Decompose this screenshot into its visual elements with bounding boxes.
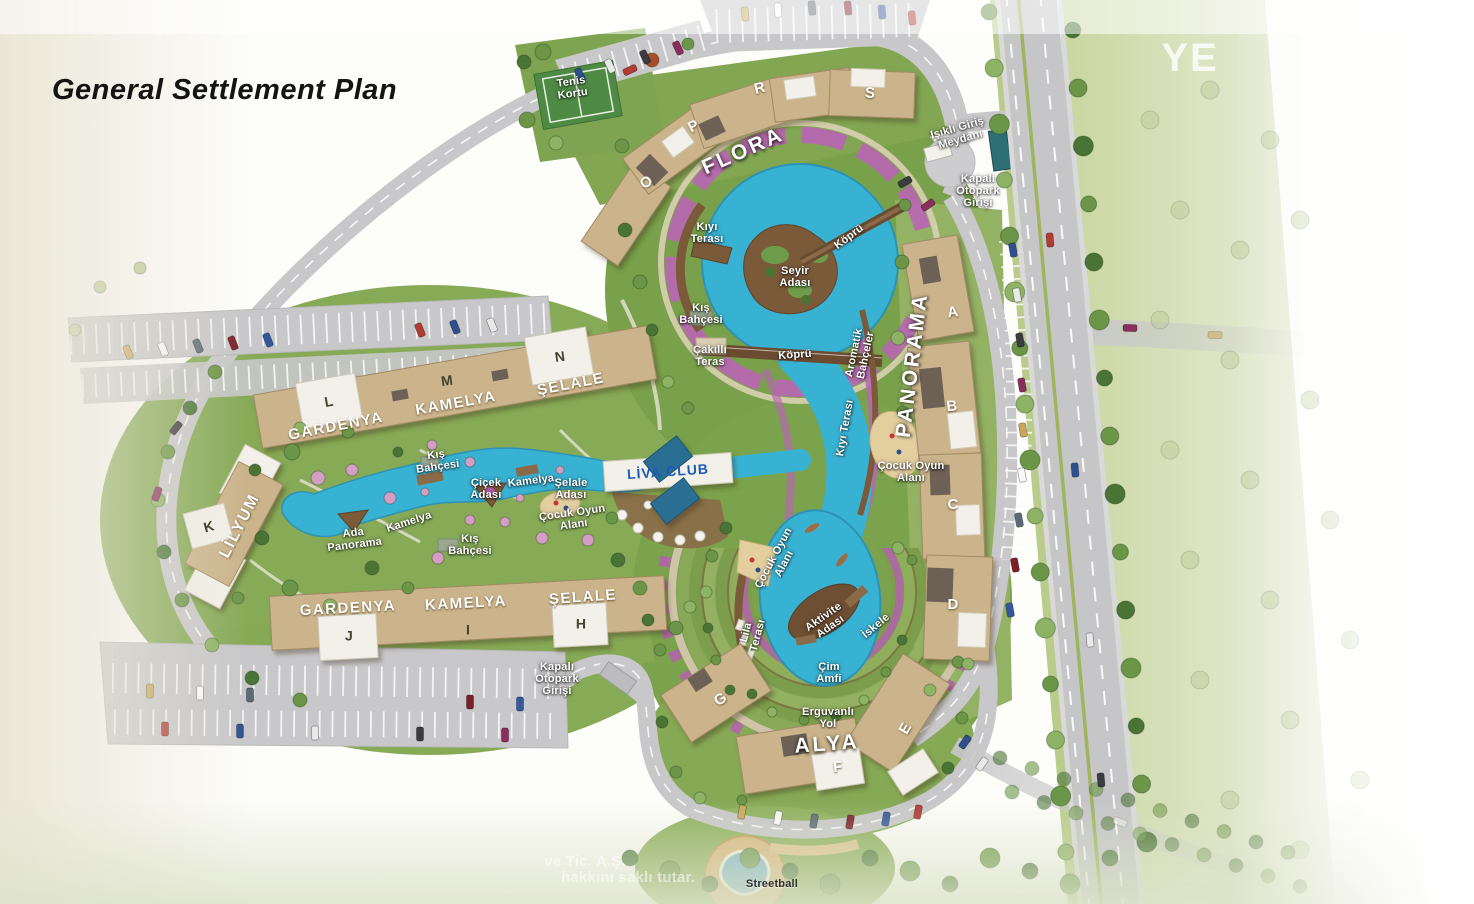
site-plan-drawing bbox=[0, 0, 1474, 904]
page-title: General Settlement Plan bbox=[52, 74, 397, 107]
settlement-plan: General Settlement Plan Tenis KortuOPRSF… bbox=[0, 0, 1474, 904]
entrance-plaza bbox=[925, 137, 975, 187]
